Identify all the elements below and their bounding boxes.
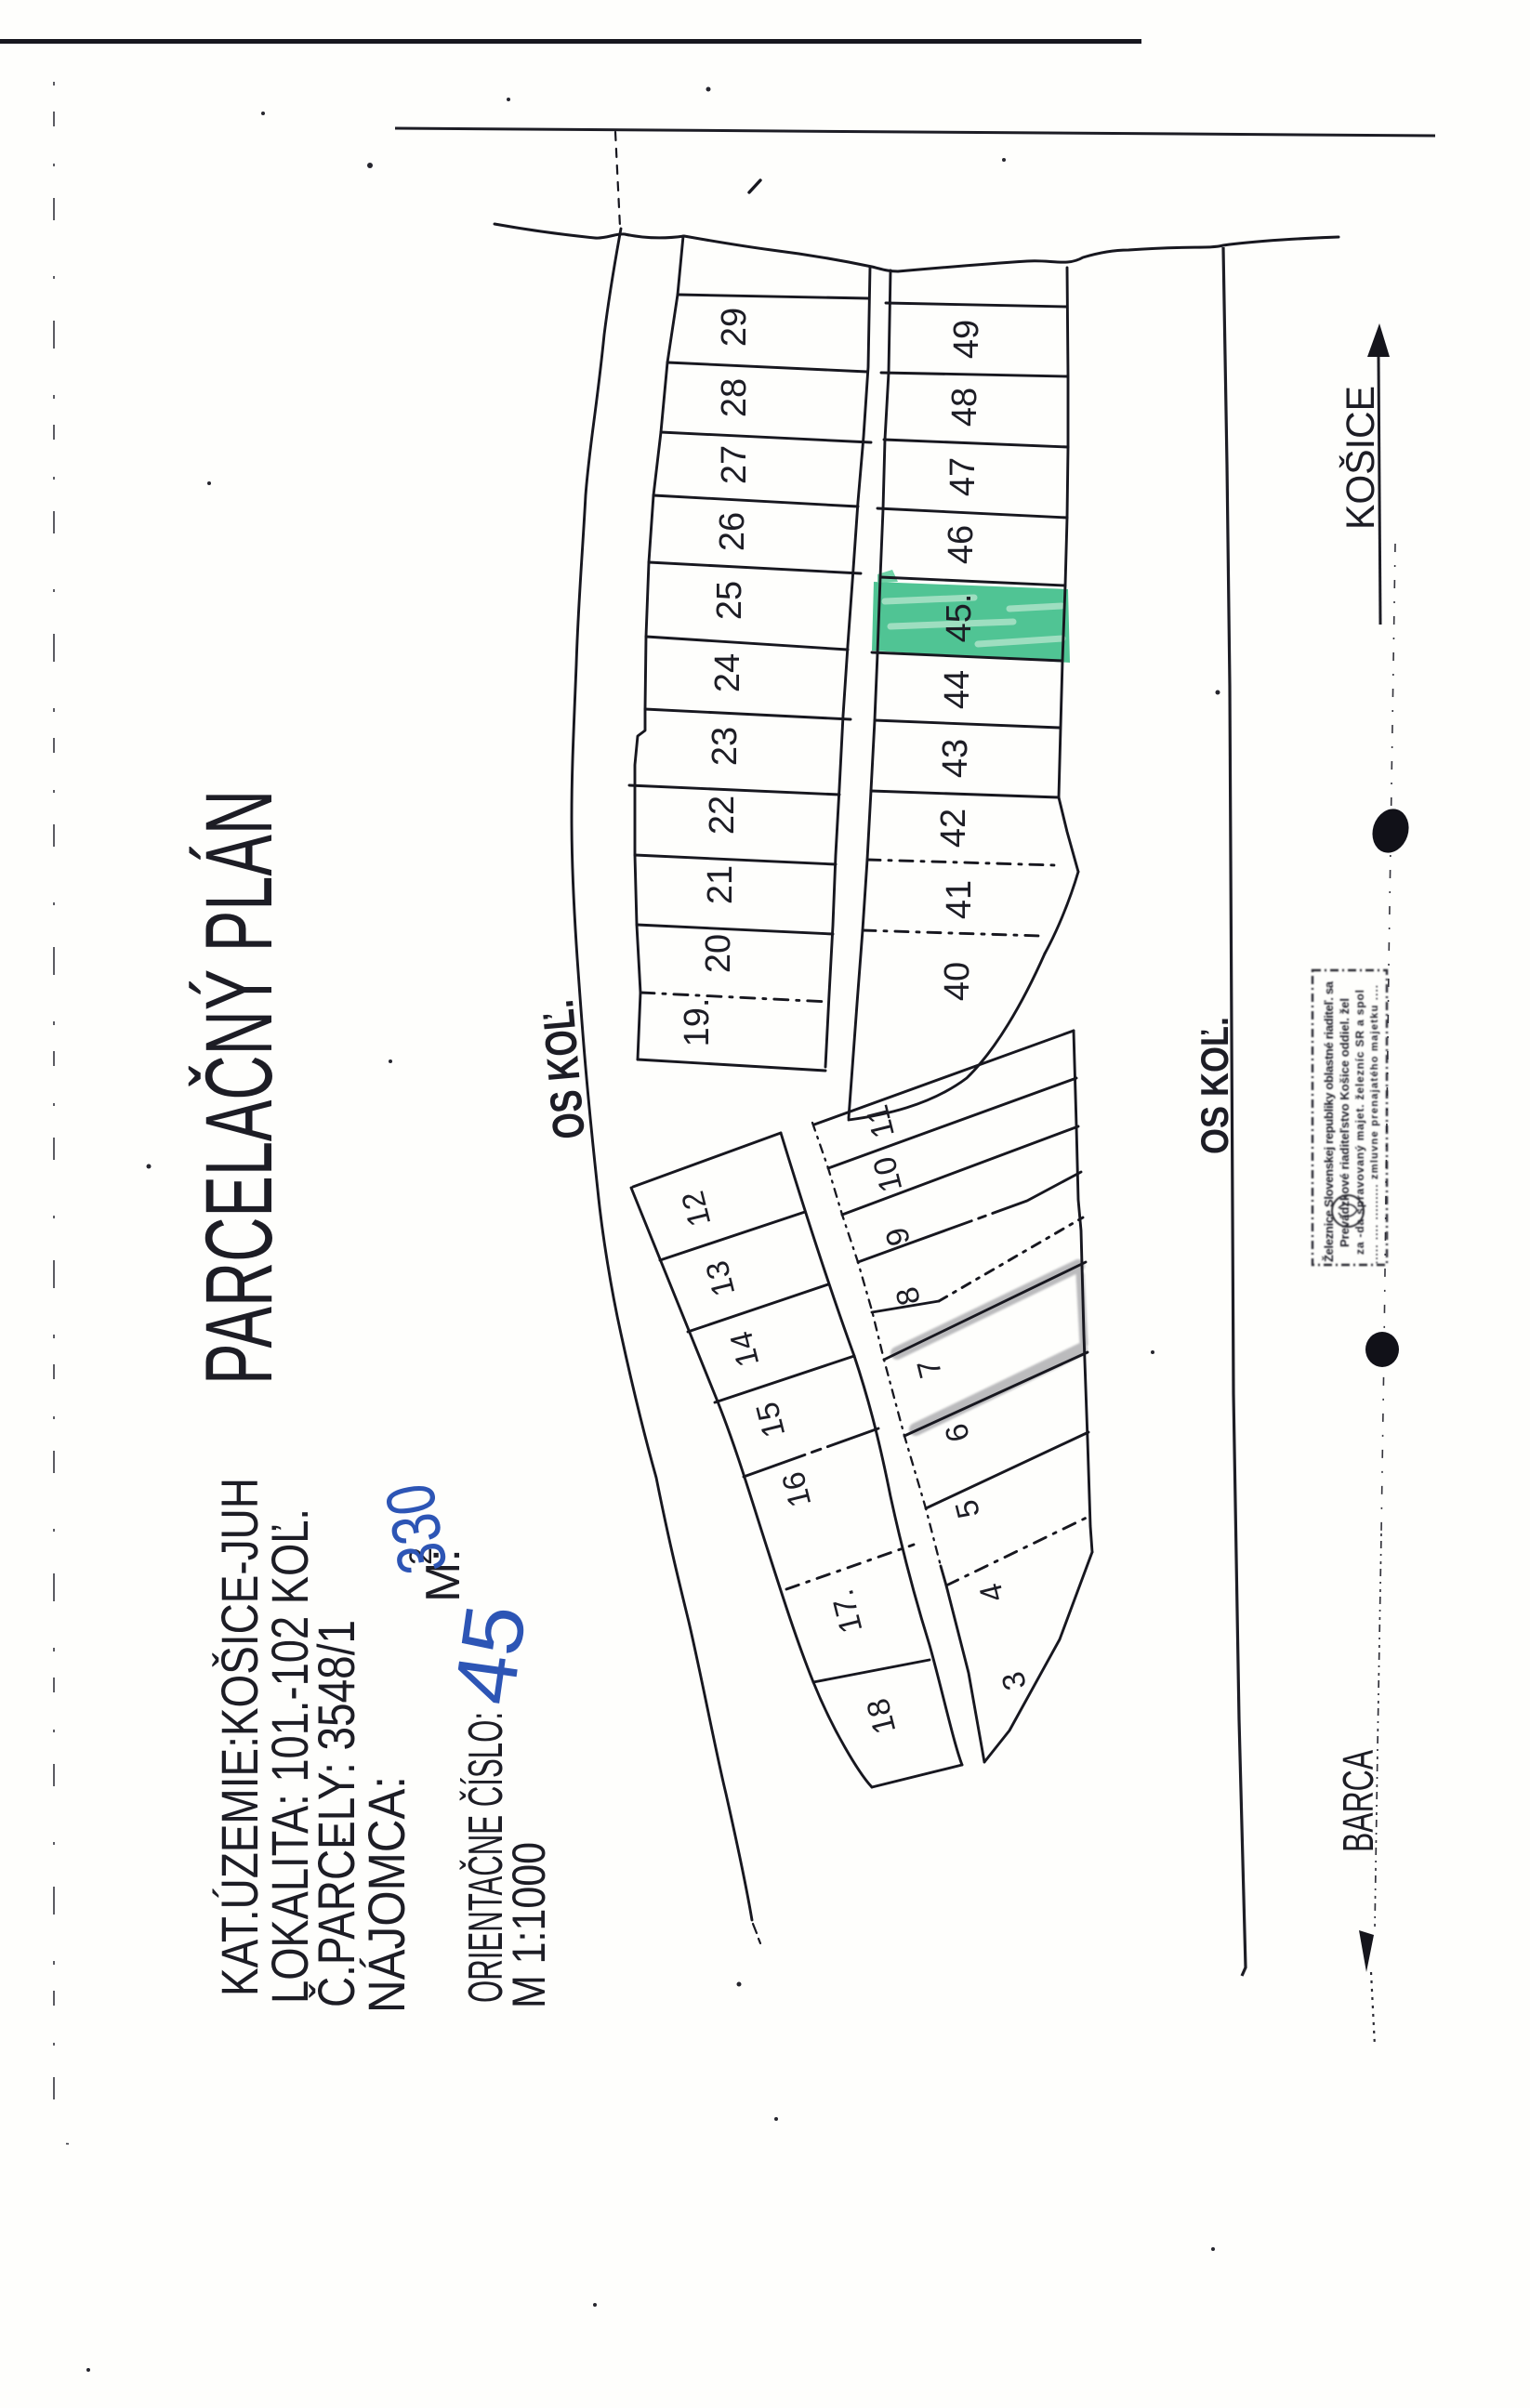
- svg-text:NÁJOMCA:: NÁJOMCA:: [357, 1776, 415, 2013]
- svg-text:Prevádzkové riaditeľstvo Košic: Prevádzkové riaditeľstvo Košice oddiel. …: [1338, 998, 1352, 1247]
- svg-text:KOŠICE: KOŠICE: [1339, 386, 1383, 530]
- svg-text:43: 43: [936, 739, 975, 778]
- svg-text:23: 23: [706, 727, 745, 766]
- svg-text:42: 42: [934, 809, 973, 848]
- svg-text:20: 20: [699, 934, 738, 973]
- svg-text:..... .... ......... zmluvne p: ..... .... ......... zmluvne prenajatého…: [1369, 985, 1380, 1264]
- svg-text:PARCELAČNÝ PLÁN: PARCELAČNÝ PLÁN: [186, 790, 292, 1385]
- svg-text:Železnice Slovenskej republiky: Železnice Slovenskej republiky oblastné …: [1322, 980, 1336, 1262]
- svg-text:45: 45: [437, 1599, 545, 1710]
- svg-text:46: 46: [942, 525, 981, 564]
- svg-text:28: 28: [715, 378, 754, 417]
- svg-text:19.: 19.: [678, 998, 717, 1047]
- svg-text:22: 22: [703, 796, 742, 835]
- svg-text:OS KOĽ.: OS KOĽ.: [1193, 1017, 1236, 1154]
- svg-text:40: 40: [938, 962, 977, 1001]
- svg-text:26: 26: [713, 512, 752, 551]
- svg-text:330: 330: [370, 1479, 461, 1580]
- svg-text:M 1:1000: M 1:1000: [503, 1842, 555, 2008]
- svg-text:49: 49: [947, 320, 986, 359]
- svg-text:BARCA: BARCA: [1334, 1750, 1382, 1852]
- svg-text:47: 47: [943, 457, 983, 496]
- svg-text:za -da spravovaný majet. želez: za -da spravovaný majet. železníc SR a s…: [1353, 990, 1366, 1255]
- svg-text:27: 27: [715, 445, 754, 484]
- svg-text:24: 24: [708, 653, 747, 692]
- svg-text:21: 21: [701, 865, 740, 904]
- svg-text:48: 48: [945, 388, 984, 427]
- svg-text:29: 29: [715, 308, 754, 347]
- svg-text:25: 25: [710, 581, 749, 620]
- svg-text:44: 44: [938, 670, 977, 709]
- svg-text:41: 41: [940, 880, 979, 919]
- svg-text:45.: 45.: [940, 594, 979, 643]
